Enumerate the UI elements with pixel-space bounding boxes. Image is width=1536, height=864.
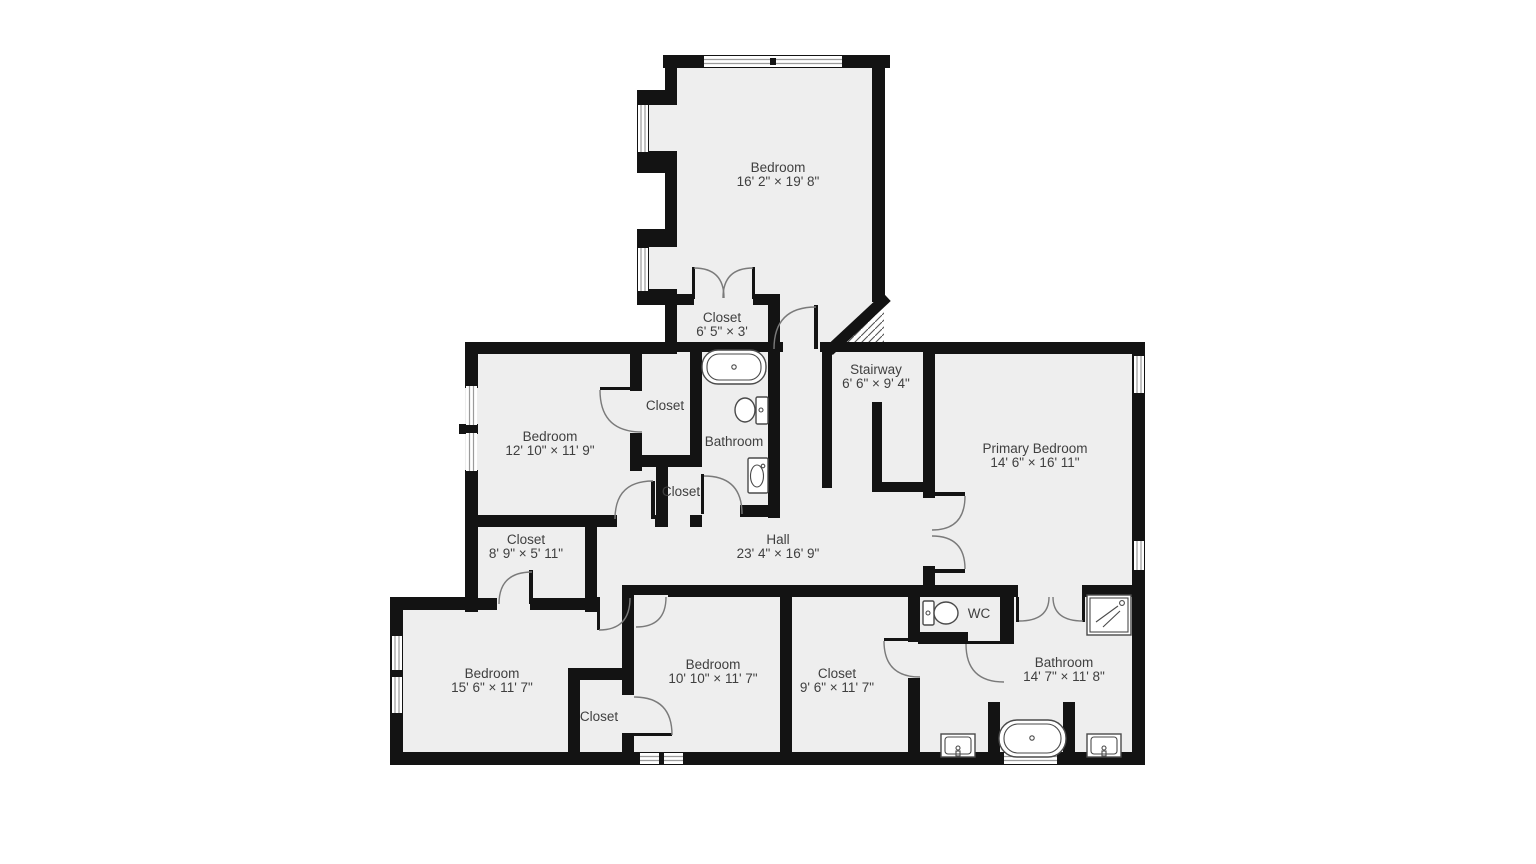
room-label: Closet [703, 310, 742, 325]
room-dims: 23' 4" × 16' 9" [737, 546, 820, 561]
room-label: Closet [580, 709, 619, 724]
floor-plan: Bedroom 16' 2" × 19' 8" Closet 6' 5" × 3… [0, 0, 1536, 864]
toilet-icon [923, 601, 958, 625]
room-dims: 10' 10" × 11' 7" [668, 671, 757, 686]
sink-icon [941, 734, 975, 757]
room-dims: 6' 5" × 3' [696, 324, 748, 339]
bathtub-icon [999, 720, 1066, 757]
room-label: Bedroom [686, 657, 741, 672]
window [1134, 356, 1144, 393]
room-dims: 8' 9" × 5' 11" [489, 546, 563, 561]
room-dims: 14' 6" × 16' 11" [990, 455, 1079, 470]
room-label: Bedroom [465, 666, 520, 681]
room-dims: 16' 2" × 19' 8" [737, 174, 820, 189]
room-label: WC [968, 606, 991, 621]
room-label: Stairway [850, 362, 902, 377]
window [391, 636, 403, 713]
room-label: Bedroom [751, 160, 806, 175]
room-dims: 14' 7" × 11' 8" [1023, 669, 1105, 684]
room-dims: 15' 6" × 11' 7" [451, 680, 533, 695]
room-dims: 6' 6" × 9' 4" [842, 376, 910, 391]
room-dims: 9' 6" × 11' 7" [800, 680, 874, 695]
shower-icon [1087, 595, 1131, 635]
room-label: Bathroom [705, 434, 764, 449]
window [638, 248, 648, 291]
room-label: Bedroom [523, 429, 578, 444]
floor-plan-canvas: Bedroom 16' 2" × 19' 8" Closet 6' 5" × 3… [0, 0, 1536, 864]
window [638, 105, 648, 152]
sink-icon [1087, 734, 1121, 757]
room-dims: 12' 10" × 11' 9" [505, 443, 594, 458]
room-label: Bathroom [1035, 655, 1094, 670]
sink-icon [748, 458, 768, 493]
window [465, 386, 478, 471]
bathtub-icon [702, 350, 766, 384]
toilet-icon [735, 397, 768, 424]
room-label: Hall [766, 532, 789, 547]
window [640, 753, 683, 764]
room-label: Closet [662, 484, 701, 499]
window [1134, 541, 1144, 570]
room-label: Primary Bedroom [982, 441, 1087, 456]
room-label: Closet [646, 398, 685, 413]
room-label: Closet [818, 666, 857, 681]
window [704, 56, 842, 67]
room-label: Closet [507, 532, 546, 547]
